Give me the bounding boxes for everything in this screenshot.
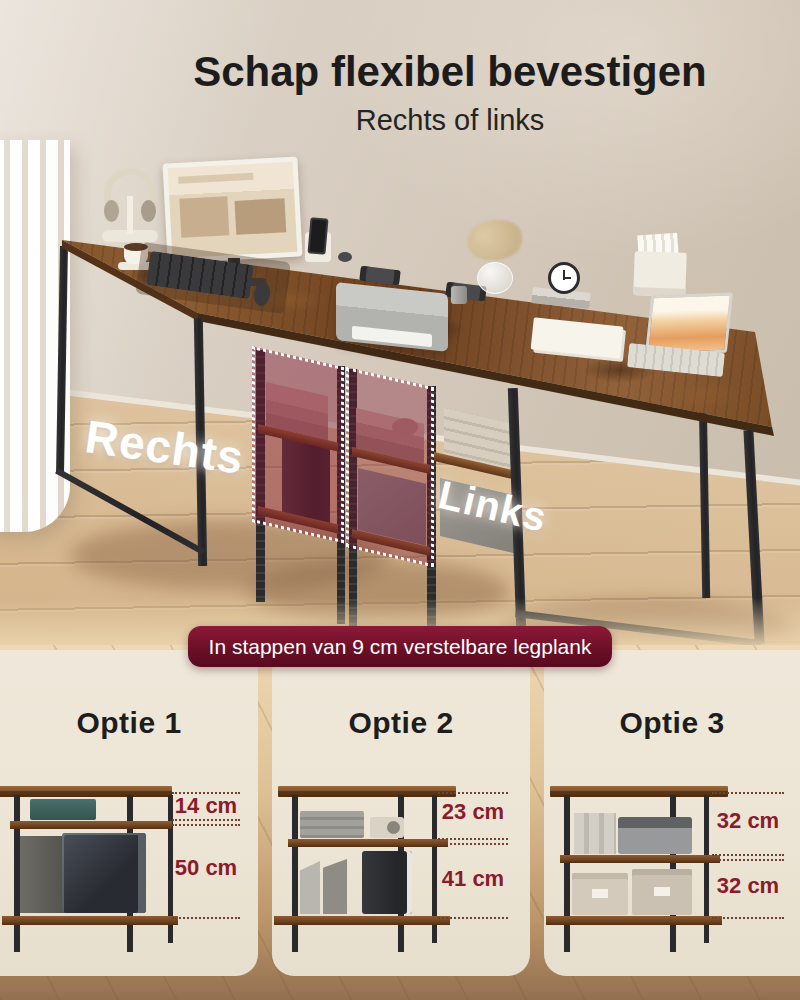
option-1-desktop [0,786,172,797]
feature-banner: In stappen van 9 cm verstelbare legplank [188,626,612,667]
option-3-shelf [560,855,720,863]
option-2-speaker-dial [387,821,400,834]
option-3-printer [618,817,692,854]
smartwatch [338,252,352,262]
option-3-measure-2: 32 cm [712,875,784,897]
option-3-bottom-shelf [546,916,722,925]
option-2-dim-line-top [438,792,508,794]
option-2-measure-1: 23 cm [438,801,508,823]
option-2-dim-line-mid-b [438,843,508,845]
option-2-pc-tower [362,851,412,914]
glass-vase [477,262,513,294]
option-3-dim-line-mid-b [712,859,784,861]
option-3-binders [574,813,616,854]
option-2-leg-left [292,795,298,952]
clock-hand-hour [563,277,571,279]
option-1-dim-line-bottom [172,917,240,919]
room-photo: Rechts Links [0,0,800,645]
file-organizer [633,251,687,297]
option-2-basket [300,811,364,838]
shelf-highlight-rechts [252,346,344,543]
option-1-title: Optie 1 [0,706,258,740]
option-1-pc-case [62,833,146,913]
option-2-dim-line-mid-a [438,838,508,840]
option-2-shelf [288,839,448,847]
option-1-measure-1: 14 cm [172,795,240,817]
option-3-dim-line-bottom [712,917,784,919]
option-3-title: Optie 3 [544,706,800,740]
option-2-bottom-shelf [274,916,450,925]
page-title: Schap flexibel bevestigen [100,48,800,96]
phone [307,217,328,254]
option-1-measure-2: 50 cm [172,857,240,879]
option-3-box-1-label [592,889,608,898]
option-1-books [98,805,142,820]
headphone-cup-left [104,200,119,222]
option-1-bottom-shelf [2,916,178,925]
option-2-dim-line-bottom [438,917,508,919]
option-1-dim-line-mid-b [172,824,240,826]
option-1-shelf [10,821,172,829]
headphone-cup-right [141,200,156,222]
monitor-screen-headline [178,173,253,184]
clock [548,262,580,294]
option-1-gray-tower [20,836,64,913]
option-3-storage-box-2 [632,869,692,915]
option-3-leg-left [564,795,570,952]
option-2-title: Optie 2 [272,706,530,740]
option-2-desktop [278,786,456,797]
option-1-teal-box [30,799,96,820]
option-3-dim-line-mid-a [712,854,784,856]
option-2-measure-2: 41 cm [438,868,508,890]
dried-flowers [468,220,522,260]
option-3-box-2-label [654,887,670,896]
option-2-speaker [370,817,404,838]
monitor-screen-image-2 [235,198,287,235]
option-3-storage-box-1 [572,873,628,915]
option-3-measure-1: 32 cm [712,810,784,832]
product-poster: Rechts Links Schap flexibel bevestigen R… [0,0,800,1000]
option-3-dim-line-top [712,792,784,794]
options-section: Optie 1 Optie 2 Optie 3 14 cm 50 cm [0,645,800,1000]
small-jar [451,286,467,304]
option-1-dim-line-mid-a [172,819,240,821]
option-2-magazine-file-2 [323,859,347,914]
monitor-screen [168,162,298,258]
shelf-highlight-links [346,367,434,567]
option-3-desktop [550,786,728,797]
page-subtitle: Rechts of links [100,104,800,137]
monitor-screen-image-1 [179,196,229,238]
